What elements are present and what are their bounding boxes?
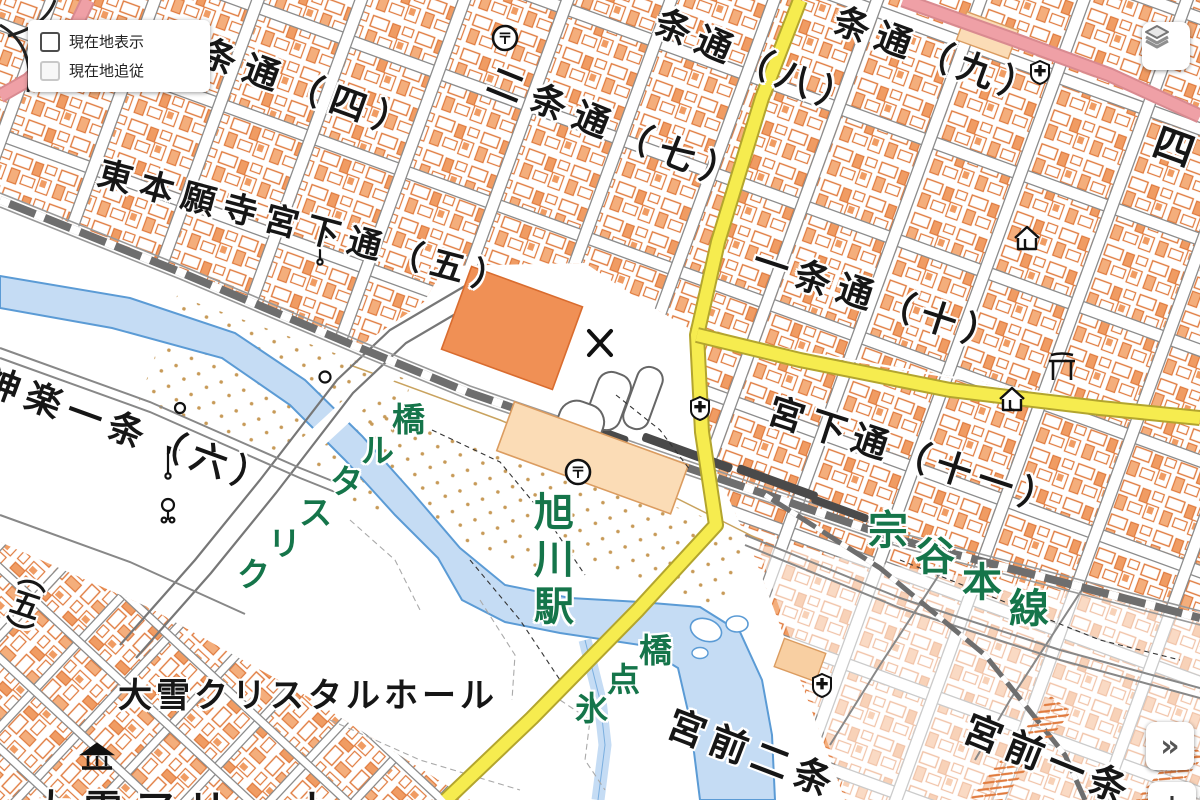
svg-text:〒: 〒 xyxy=(497,30,512,48)
follow-location-label: 現在地追従 xyxy=(69,60,144,81)
follow-location-checkbox[interactable] xyxy=(40,61,60,81)
map-canvas[interactable]: 〒 〒 xyxy=(0,0,1200,800)
show-location-row: 現在地表示 xyxy=(38,27,200,56)
layers-icon xyxy=(1142,22,1172,52)
show-location-checkbox[interactable] xyxy=(40,32,60,52)
svg-text:〒: 〒 xyxy=(570,464,585,482)
show-location-label: 現在地表示 xyxy=(69,31,144,52)
location-panel: 現在地表示 現在地追従 xyxy=(28,20,210,92)
post-office-icon: 〒 xyxy=(493,26,517,50)
layers-button[interactable] xyxy=(1142,22,1190,70)
zoom-in-button[interactable]: ＋ xyxy=(1148,782,1196,800)
well-icon xyxy=(175,403,185,413)
follow-location-row: 現在地追従 xyxy=(38,56,200,85)
post-office-icon: 〒 xyxy=(566,460,590,484)
chevron-double-right-icon: » xyxy=(1160,729,1179,764)
plus-icon: ＋ xyxy=(1157,784,1187,800)
expand-sidebar-button[interactable]: » xyxy=(1146,722,1194,770)
map-viewport[interactable]: 〒 〒 xyxy=(0,0,1200,800)
city-office-icon xyxy=(320,372,331,383)
